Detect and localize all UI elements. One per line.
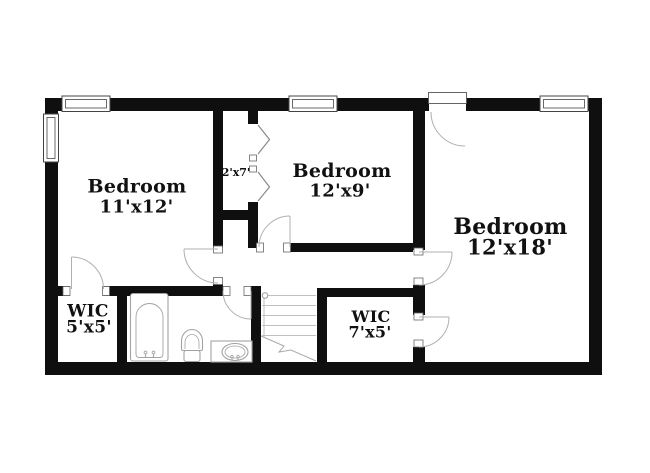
wall (248, 202, 258, 212)
window-icon (289, 96, 337, 112)
door-jamb (414, 340, 423, 347)
stair-break-line (261, 336, 316, 361)
room-dims: 12'x18' (467, 235, 553, 260)
door-jamb (284, 243, 291, 252)
door-jamb (223, 287, 230, 296)
bifold-panel (258, 172, 270, 201)
wall (248, 111, 258, 124)
wall (213, 284, 223, 296)
bathroom-fixtures (131, 294, 253, 363)
door-jamb (257, 243, 264, 252)
door-swing-icon (184, 249, 218, 283)
floor-plan: Bedroom 11'x12' Bedroom 12'x9' Bedroom 1… (0, 0, 650, 473)
wall-bottom (45, 362, 602, 375)
toilet-icon (182, 330, 203, 362)
wall (413, 285, 425, 315)
wall (117, 296, 127, 362)
wall (317, 288, 327, 362)
room-dims: 12'x9' (309, 181, 370, 202)
bifold-panel (258, 125, 270, 154)
doors (72, 216, 453, 347)
door-swing-icon (419, 252, 452, 285)
room-dims: 11'x12' (100, 197, 174, 218)
bathtub-icon (131, 294, 169, 362)
wall-right (589, 98, 602, 375)
room-label: Bedroom (88, 176, 187, 198)
wall (290, 243, 413, 252)
door-swing-icon (419, 317, 449, 347)
door-leaf (429, 93, 467, 104)
staircase-icon (261, 293, 316, 361)
window-icon (44, 114, 59, 162)
wall (317, 288, 417, 297)
room-dims: 7'x5' (348, 323, 391, 342)
door-jamb (250, 166, 257, 172)
door-swing-icon (431, 112, 465, 146)
room-dims: 2'x7' (222, 166, 251, 179)
window-icon (62, 96, 110, 112)
door-swing-icon (72, 257, 104, 289)
stair-newel (262, 293, 268, 299)
door-jamb (414, 278, 423, 285)
bifold-door-icon (258, 125, 270, 201)
sink-vanity-icon (211, 341, 252, 362)
wall (213, 111, 223, 248)
room-dims: 5'x5' (66, 318, 112, 338)
room-label: Bedroom (293, 160, 392, 182)
window-icon (540, 96, 588, 112)
floor-plan-page: Bedroom 11'x12' Bedroom 12'x9' Bedroom 1… (0, 0, 650, 473)
wall (413, 111, 425, 250)
door-jamb (63, 287, 70, 296)
wall (413, 347, 425, 362)
top-entry-door (429, 93, 467, 147)
door-swing-icon (259, 216, 290, 247)
door-jamb (244, 287, 251, 296)
door-jamb (250, 155, 257, 161)
